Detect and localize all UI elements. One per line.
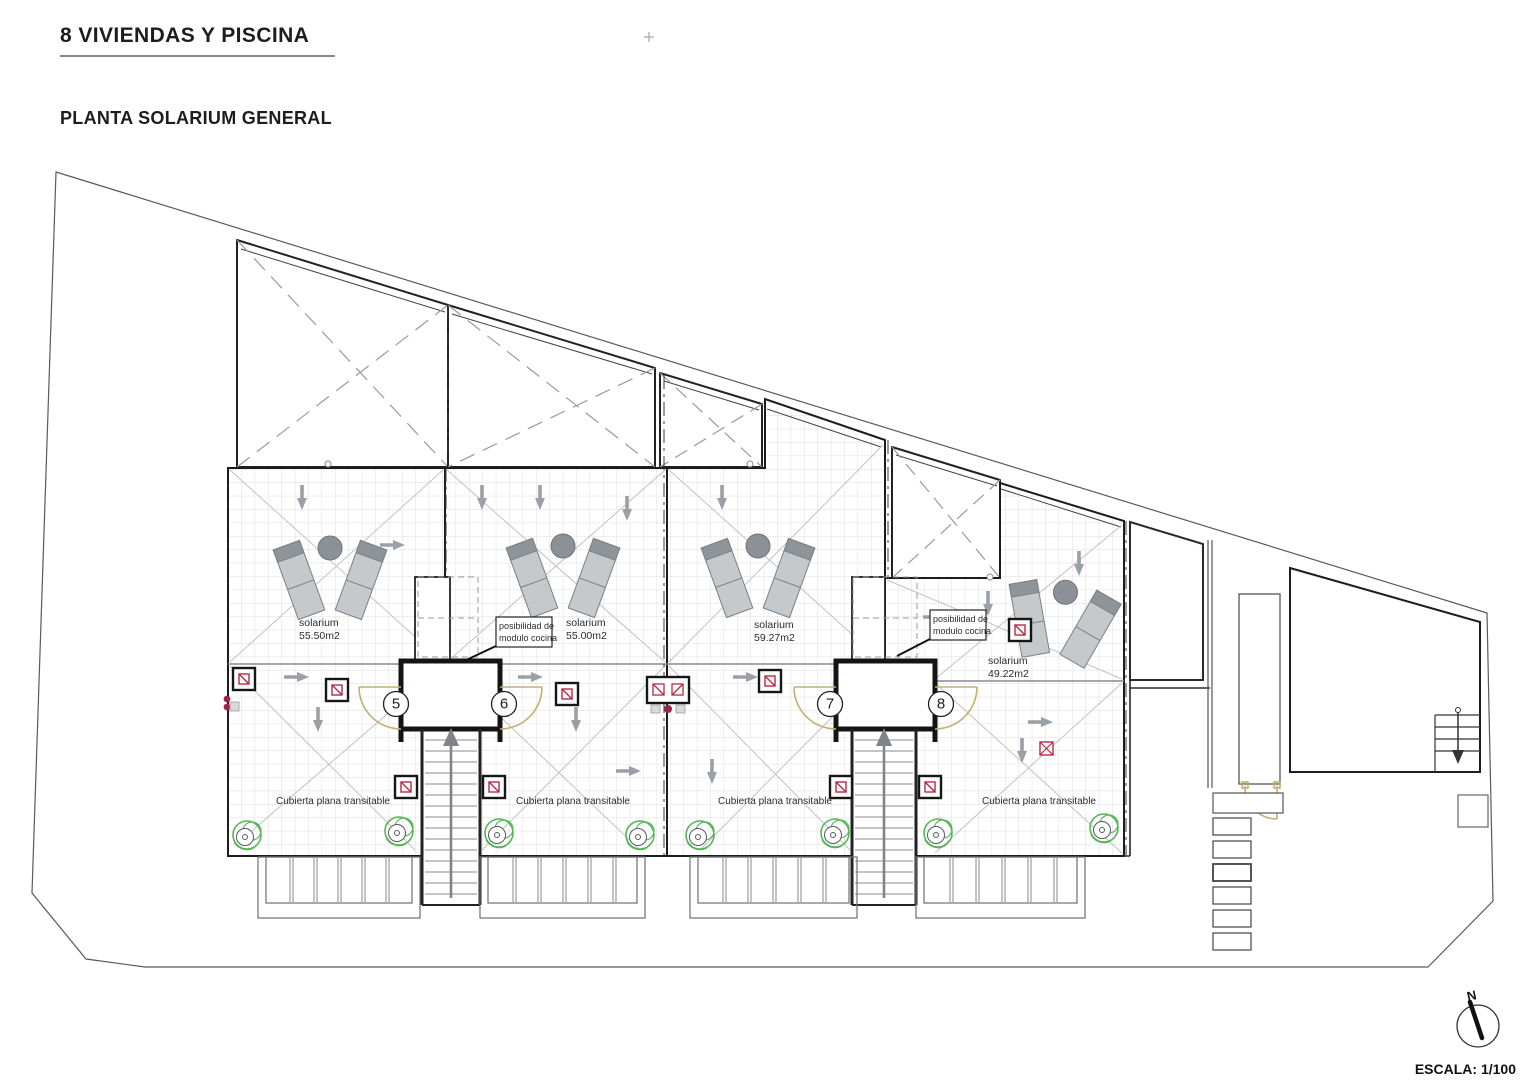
skylight-icon bbox=[759, 670, 781, 692]
unit-number: 7 bbox=[826, 696, 834, 713]
skylight-icon bbox=[556, 683, 578, 705]
double-skylight-icon bbox=[647, 677, 689, 713]
solarium-label-unit-6: solarium 55.00m2 bbox=[566, 617, 609, 642]
solarium-label-unit-7: solarium 59.27m2 bbox=[754, 619, 797, 644]
roof-label-unit-6: Cubierta plana transitable bbox=[516, 796, 630, 807]
pipe-marker bbox=[224, 696, 231, 703]
pergola-unit-5 bbox=[258, 857, 420, 918]
right-wing bbox=[1124, 522, 1488, 950]
solarium-label-unit-8: solarium 49.22m2 bbox=[988, 655, 1031, 680]
floor-plan-svg: 5 6 7 8 bbox=[0, 0, 1527, 1080]
roof-drain-marker bbox=[1040, 742, 1053, 755]
pergola-unit-8 bbox=[916, 857, 1085, 918]
north-needle-icon bbox=[1470, 1002, 1482, 1038]
skylight-icon bbox=[830, 776, 852, 798]
roof-panel-4 bbox=[892, 447, 1000, 578]
roof-label-unit-7: Cubierta plana transitable bbox=[718, 796, 832, 807]
unit-circle-8: 8 bbox=[929, 692, 954, 717]
roof-panel-3 bbox=[660, 373, 762, 467]
unit-number: 6 bbox=[500, 696, 508, 713]
service-box bbox=[1458, 795, 1488, 827]
skylight-icon bbox=[483, 776, 505, 798]
skylight-icon bbox=[1009, 619, 1031, 641]
unit-number: 5 bbox=[392, 696, 400, 713]
north-arrow: N bbox=[1457, 987, 1499, 1047]
unit-circle-5: 5 bbox=[384, 692, 409, 717]
unit-circle-7: 7 bbox=[818, 692, 843, 717]
solarium-label-unit-5: solarium 55.50m2 bbox=[299, 617, 342, 642]
roof-panel-2 bbox=[448, 305, 655, 467]
roof-label-unit-8: Cubierta plana transitable bbox=[982, 796, 1096, 807]
skylight-icon bbox=[326, 679, 348, 701]
drawing-sheet: 8 VIVIENDAS Y PISCINA PLANTA SOLARIUM GE… bbox=[0, 0, 1527, 1080]
pool bbox=[1290, 568, 1480, 772]
roof-label-unit-5: Cubierta plana transitable bbox=[276, 796, 390, 807]
corridor bbox=[1239, 594, 1280, 784]
exterior-steps bbox=[1213, 818, 1251, 950]
side-room bbox=[1130, 522, 1203, 680]
north-label: N bbox=[1466, 987, 1478, 1004]
reference-cross-icon bbox=[644, 32, 654, 42]
pergolas bbox=[258, 857, 1085, 918]
pergola-unit-7 bbox=[690, 857, 857, 918]
roof-panel-1 bbox=[237, 240, 448, 467]
pipe-box bbox=[230, 702, 239, 711]
pipe-marker bbox=[224, 704, 231, 711]
skylight-icon bbox=[395, 776, 417, 798]
pergola-unit-6 bbox=[480, 857, 645, 918]
scale-label: ESCALA: 1/100 bbox=[1415, 1061, 1516, 1077]
unit-circle-6: 6 bbox=[492, 692, 517, 717]
skylight-icon bbox=[233, 668, 255, 690]
unit-number: 8 bbox=[937, 696, 945, 713]
landing-slab bbox=[1213, 793, 1283, 813]
skylight-icon bbox=[919, 776, 941, 798]
